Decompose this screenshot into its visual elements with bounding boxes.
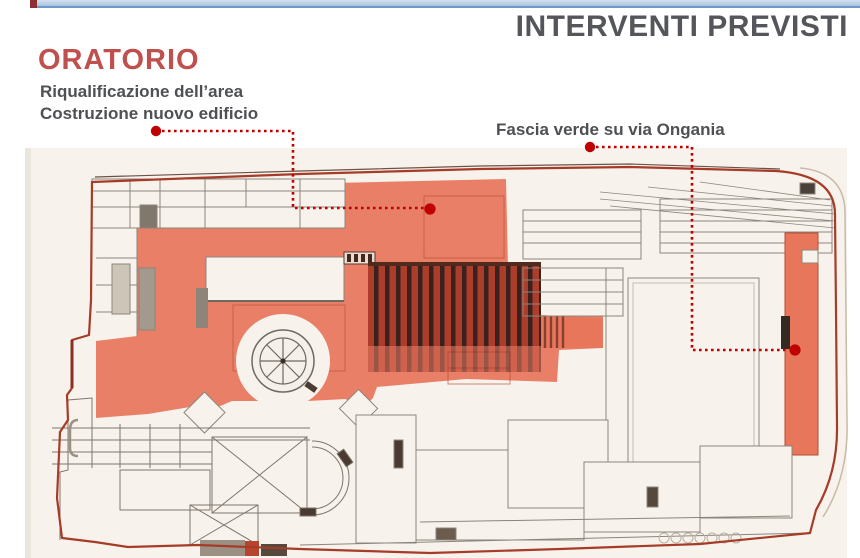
leader-dot	[151, 126, 161, 136]
leader-dot	[789, 344, 800, 355]
top-strip-buildings	[92, 179, 345, 228]
leader-dot	[585, 142, 595, 152]
fascia-verde-strip	[781, 233, 818, 455]
leader-dot	[424, 203, 435, 214]
site-plan-drawing	[0, 0, 860, 558]
round-building	[236, 314, 330, 408]
